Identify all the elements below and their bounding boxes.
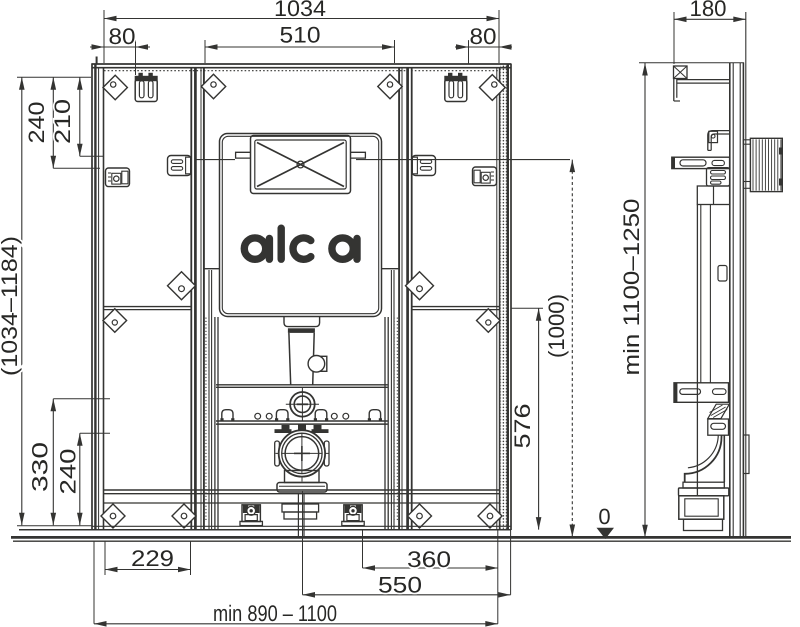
svg-text:240: 240 [24,102,49,144]
svg-text:1034: 1034 [274,0,326,21]
svg-text:550: 550 [378,572,422,597]
svg-text:min 1100–1250: min 1100–1250 [619,199,644,376]
svg-text:(1034–1184): (1034–1184) [0,236,22,376]
svg-text:80: 80 [108,24,135,49]
svg-text:(1000): (1000) [544,294,569,358]
svg-text:576: 576 [510,404,535,449]
svg-text:0: 0 [598,504,611,529]
svg-text:210: 210 [50,99,75,144]
svg-text:510: 510 [279,22,320,47]
svg-text:min 890 – 1100: min 890 – 1100 [213,601,337,626]
svg-text:330: 330 [28,442,53,492]
svg-text:360: 360 [407,547,451,572]
svg-text:180: 180 [689,0,726,21]
svg-text:229: 229 [131,546,174,571]
svg-text:80: 80 [469,24,496,49]
svg-text:240: 240 [56,449,81,495]
